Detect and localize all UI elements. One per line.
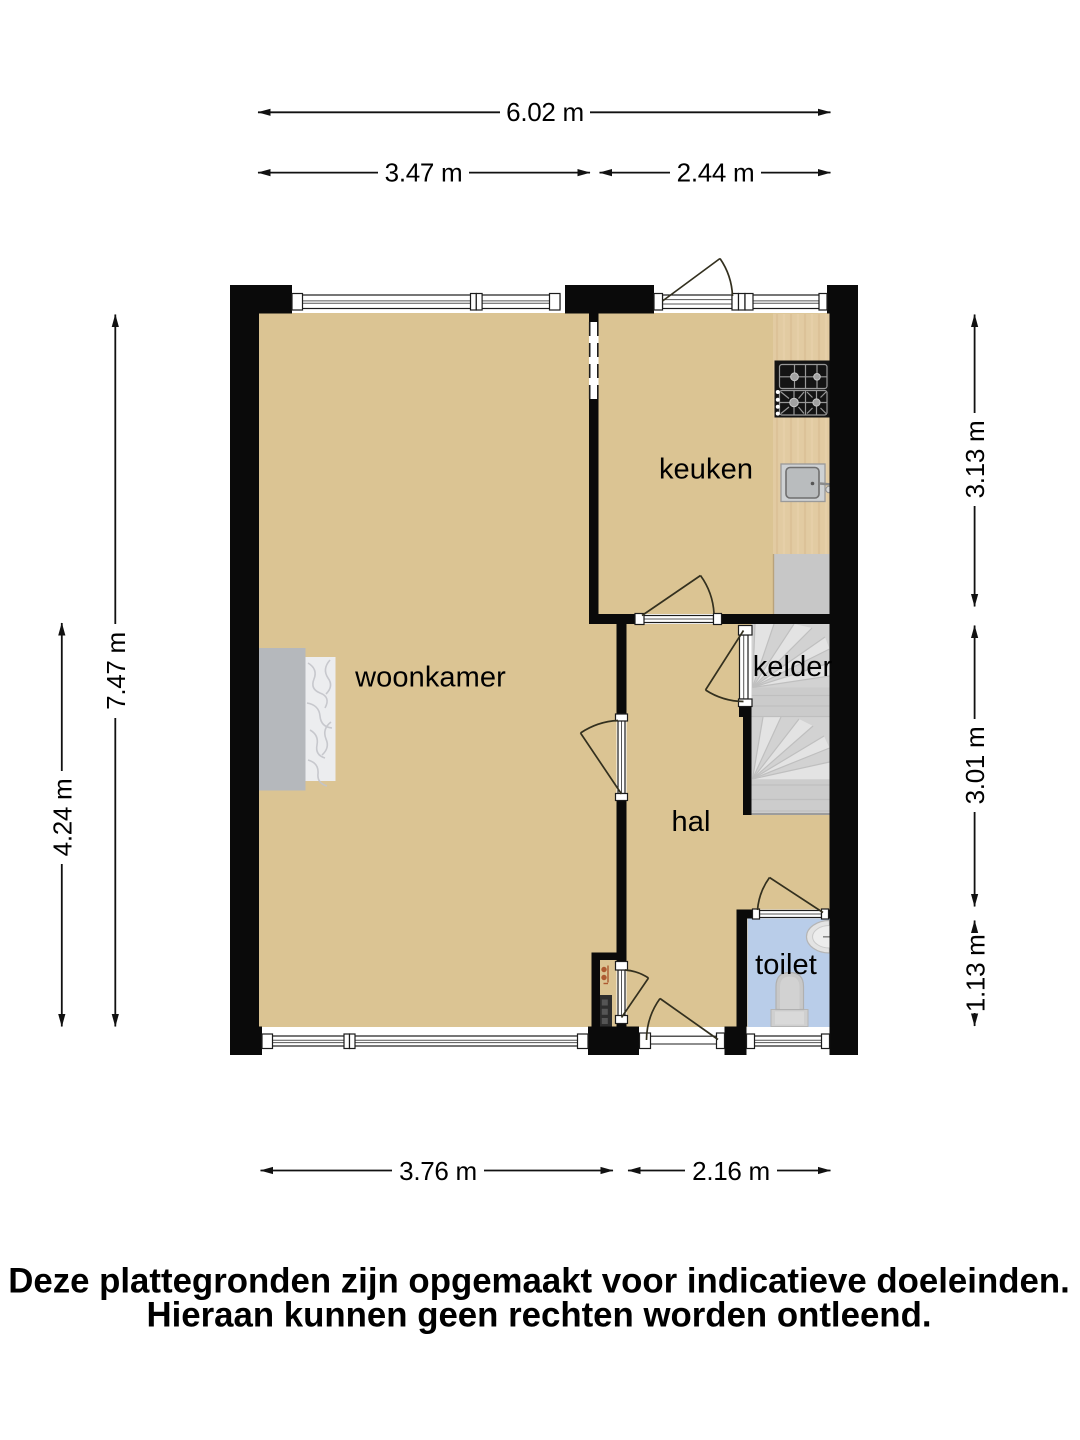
svg-text:3.47 m: 3.47 m bbox=[385, 158, 463, 188]
svg-text:4.24 m: 4.24 m bbox=[47, 779, 77, 857]
svg-text:1.13 m: 1.13 m bbox=[960, 934, 990, 1012]
svg-text:2.44 m: 2.44 m bbox=[677, 158, 755, 188]
svg-text:2.16 m: 2.16 m bbox=[692, 1156, 770, 1186]
svg-text:3.13 m: 3.13 m bbox=[960, 421, 990, 499]
svg-text:toilet: toilet bbox=[755, 949, 817, 981]
svg-text:hal: hal bbox=[672, 806, 711, 838]
svg-text:woonkamer: woonkamer bbox=[354, 662, 506, 694]
svg-text:3.01 m: 3.01 m bbox=[960, 727, 990, 805]
svg-text:Hieraan kunnen geen rechten wo: Hieraan kunnen geen rechten worden ontle… bbox=[146, 1296, 931, 1335]
svg-text:6.02 m: 6.02 m bbox=[506, 97, 584, 127]
svg-text:keuken: keuken bbox=[659, 454, 753, 486]
svg-text:3.76 m: 3.76 m bbox=[399, 1156, 477, 1186]
svg-text:7.47 m: 7.47 m bbox=[101, 632, 131, 710]
svg-text:kelder: kelder bbox=[753, 651, 833, 683]
